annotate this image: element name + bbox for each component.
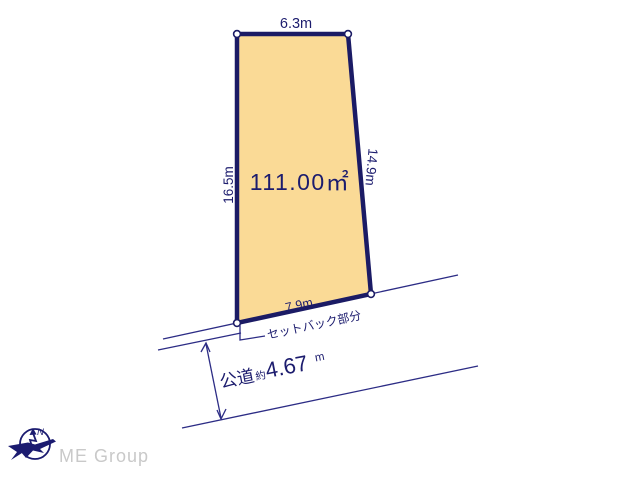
corner-marker-bottom-right bbox=[368, 291, 375, 298]
dimension-left: 16.5m bbox=[221, 166, 236, 204]
road-width-value: 4.67 bbox=[263, 350, 310, 383]
road-width-unit: m bbox=[314, 351, 326, 365]
diagram-svg: 7.9m 6.3m 16.5m 14.9m 111.00㎡ セットバック部分 公… bbox=[0, 0, 640, 480]
dimension-top: 6.3m bbox=[280, 16, 312, 32]
road-edge-line-inner bbox=[158, 333, 241, 350]
compass-north-label: N bbox=[37, 427, 44, 438]
corner-marker-top-left bbox=[234, 31, 241, 38]
corner-marker-top-right bbox=[345, 31, 352, 38]
road-label: 公道 約 4.67 m bbox=[217, 347, 327, 392]
dimension-right: 14.9m bbox=[362, 148, 380, 187]
road-name: 公道 bbox=[218, 366, 256, 392]
setback-bracket bbox=[240, 325, 265, 340]
compass-north-icon: N bbox=[8, 427, 56, 460]
area-label: 111.00㎡ bbox=[250, 169, 350, 195]
land-plot-diagram: 7.9m 6.3m 16.5m 14.9m 111.00㎡ セットバック部分 公… bbox=[0, 0, 640, 480]
logo-text: ME Group bbox=[59, 446, 149, 466]
